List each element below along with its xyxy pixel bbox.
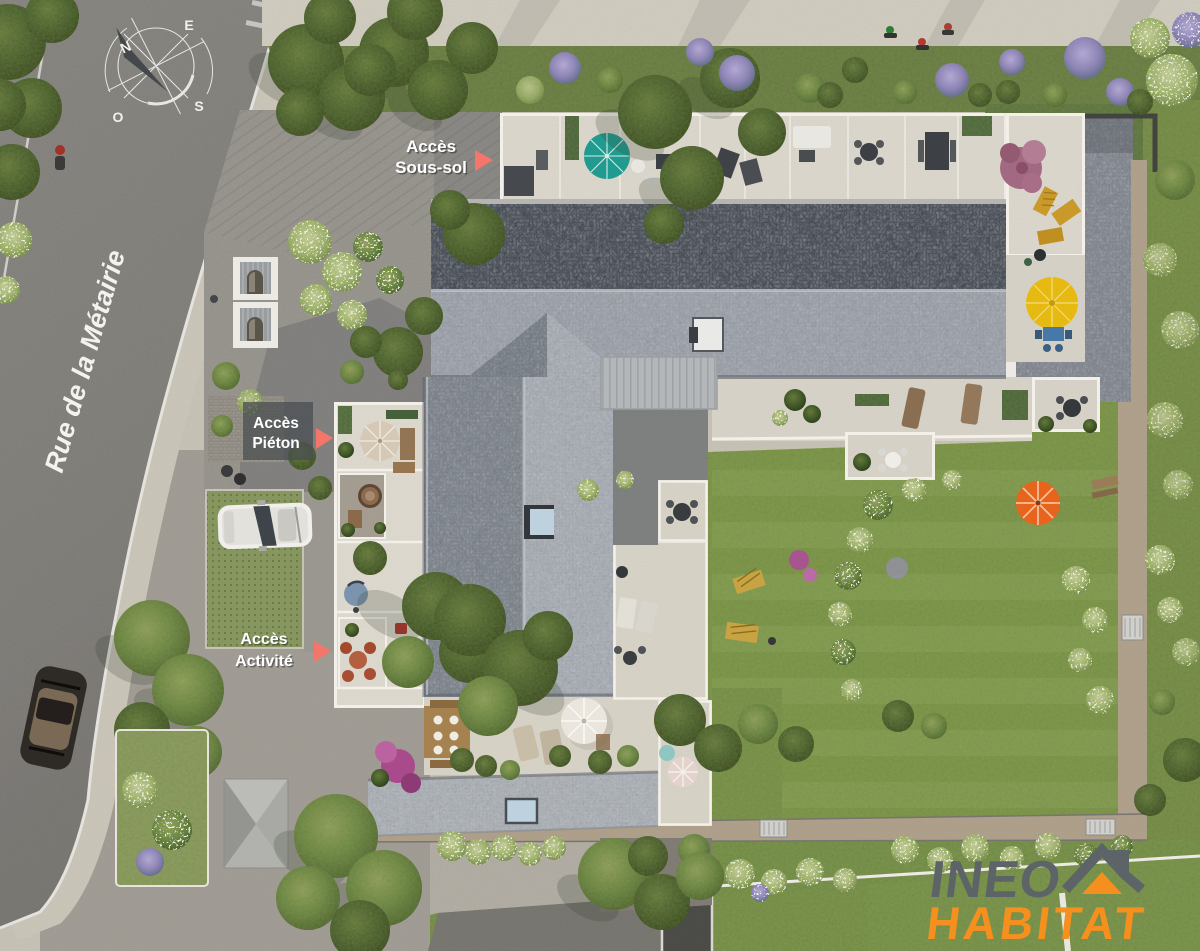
- svg-text:Sous-sol: Sous-sol: [395, 158, 467, 177]
- svg-text:HABITAT: HABITAT: [924, 897, 1150, 949]
- svg-text:Accès: Accès: [406, 137, 456, 156]
- svg-text:S: S: [194, 98, 203, 114]
- svg-text:Piéton: Piéton: [252, 435, 299, 452]
- svg-text:Accès: Accès: [240, 631, 287, 648]
- svg-text:Accès: Accès: [253, 415, 299, 432]
- svg-text:O: O: [113, 109, 124, 125]
- svg-text:Activité: Activité: [235, 653, 293, 670]
- svg-text:E: E: [184, 17, 193, 33]
